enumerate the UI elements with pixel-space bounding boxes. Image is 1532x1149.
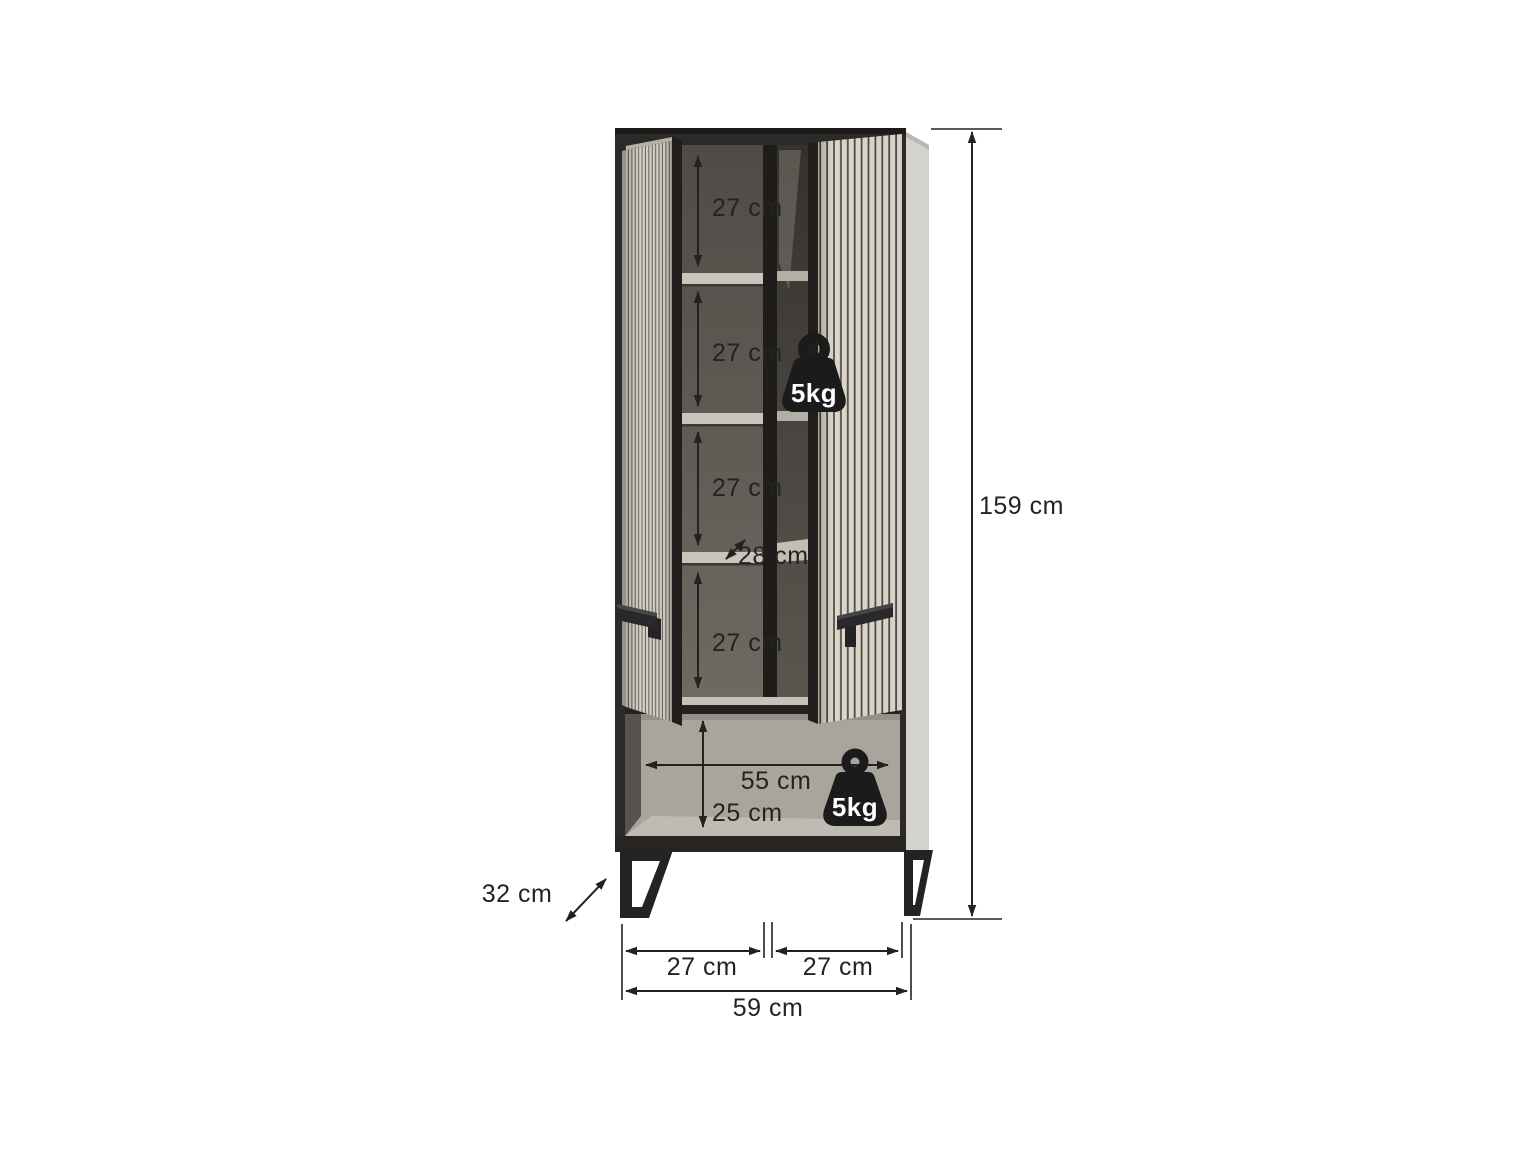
furniture-dimension-diagram: 27 cm 27 cm 27 cm 28 cm 27 cm 55 cm 25 c…	[0, 0, 1532, 1149]
right-door	[808, 134, 902, 724]
dim-label-total-height: 159 cm	[979, 492, 1064, 520]
left-door-inner-edge	[672, 137, 682, 726]
right-door-hinge-edge	[808, 142, 818, 724]
dim-label-base-right: 27 cm	[803, 953, 874, 981]
cabinet-top-band	[615, 128, 906, 134]
cabinet-side-panel	[906, 132, 929, 851]
left-door-outer-edge	[622, 150, 626, 707]
dim-label-total-width: 59 cm	[733, 994, 804, 1022]
dim-label-shelf-depth: 28 cm	[738, 542, 809, 570]
weight-5kg-niche-label: 5kg	[832, 792, 878, 822]
dim-label-inner-h1: 27 cm	[712, 194, 783, 222]
dim-label-niche-width: 55 cm	[741, 767, 812, 795]
dim-label-inner-h3: 27 cm	[712, 474, 783, 502]
dim-line-depth	[566, 879, 606, 921]
weight-5kg-shelf-label: 5kg	[791, 378, 837, 408]
dim-label-base-left: 27 cm	[667, 953, 738, 981]
left-door	[617, 137, 682, 726]
interior-divider	[763, 145, 777, 697]
dim-label-inner-h4: 27 cm	[712, 629, 783, 657]
cabinet-bottom-band	[615, 836, 906, 852]
dim-label-niche-height: 25 cm	[712, 799, 783, 827]
diagram-stage: 27 cm 27 cm 27 cm 28 cm 27 cm 55 cm 25 c…	[0, 0, 1532, 1149]
dim-label-depth: 32 cm	[482, 880, 553, 908]
metal-legs	[620, 850, 933, 918]
dim-label-inner-h2: 27 cm	[712, 339, 783, 367]
